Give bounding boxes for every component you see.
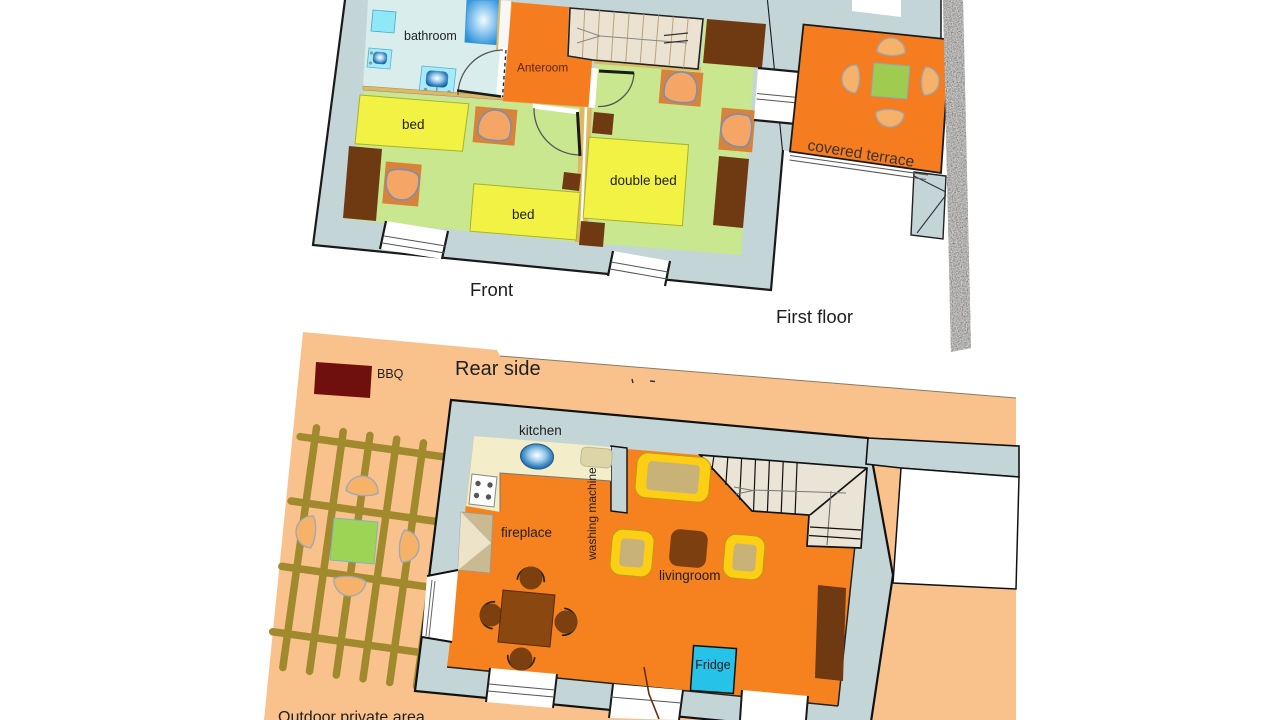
svg-text:Front: Front <box>470 279 513 300</box>
svg-text:livingroom: livingroom <box>659 568 721 583</box>
svg-text:Outdoor private area: Outdoor private area <box>278 709 425 720</box>
svg-text:BBQ: BBQ <box>377 367 404 381</box>
svg-text:Fridge: Fridge <box>695 658 730 672</box>
svg-text:bathroom: bathroom <box>404 29 457 43</box>
svg-text:kitchen: kitchen <box>519 423 562 438</box>
svg-text:fireplace: fireplace <box>501 525 552 540</box>
svg-text:double bed: double bed <box>610 173 677 188</box>
svg-text:Rear side: Rear side <box>455 358 541 380</box>
svg-text:First floor: First floor <box>776 306 853 327</box>
svg-text:bed: bed <box>512 207 535 222</box>
svg-text:washing machine: washing machine <box>585 467 599 561</box>
svg-text:bed: bed <box>402 117 425 132</box>
svg-text:Anteroom: Anteroom <box>517 61 568 75</box>
